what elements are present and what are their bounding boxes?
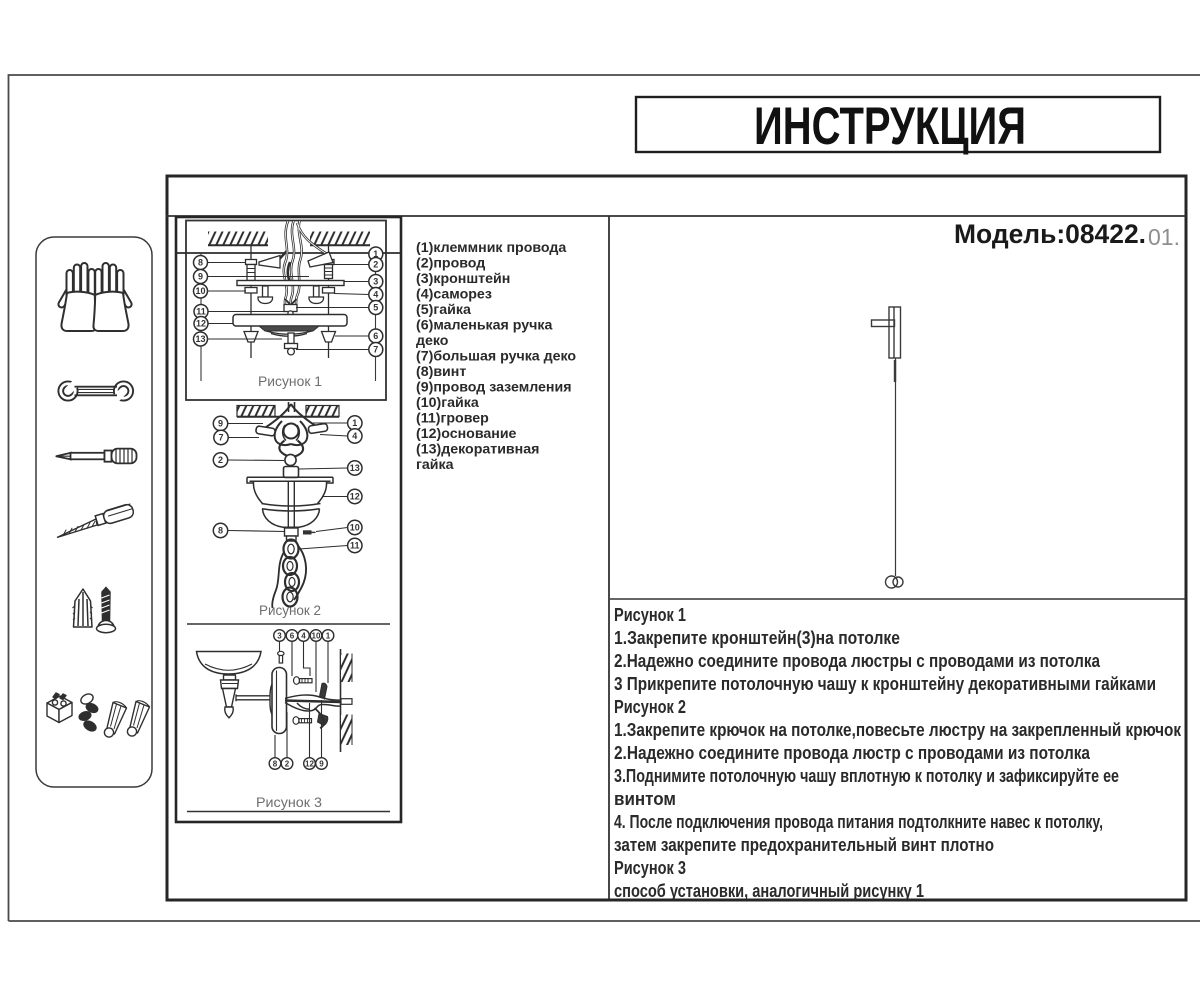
svg-text:01.: 01. [1148,224,1180,250]
svg-text:(13)декоративная: (13)декоративная [416,442,539,458]
svg-text:(3)кронштейн: (3)кронштейн [416,271,510,287]
svg-text:Рисунок 1: Рисунок 1 [614,605,686,625]
svg-text:способ установки, аналогичный: способ установки, аналогичный рисунку 1 [614,881,924,901]
svg-text:(10)гайка: (10)гайка [416,395,479,411]
svg-text:8: 8 [198,258,203,268]
svg-text:1.Закрепите кронштейн(3)на пот: 1.Закрепите кронштейн(3)на потолке [614,628,900,648]
svg-text:1: 1 [352,418,357,428]
svg-text:1.Закрепите крючок на потолке,: 1.Закрепите крючок на потолке,повесьте л… [614,720,1182,740]
svg-text:7: 7 [218,433,223,443]
svg-text:9: 9 [198,272,203,282]
svg-text:13: 13 [195,334,205,344]
svg-text:8: 8 [273,759,278,768]
svg-text:3.Поднимите потолочную чашу вп: 3.Поднимите потолочную чашу вплотную к п… [614,766,1119,786]
svg-text:11: 11 [196,307,206,317]
svg-text:(12)основание: (12)основание [416,426,517,442]
svg-text:2: 2 [285,759,290,768]
svg-text:7: 7 [373,345,378,355]
svg-text:деко: деко [416,333,449,349]
svg-text:Рисунок 1: Рисунок 1 [258,374,322,389]
svg-text:(2)провод: (2)провод [416,256,485,272]
svg-text:гайка: гайка [416,457,454,473]
svg-text:затем закрепите предохранитель: затем закрепите предохранительный винт п… [614,835,994,855]
svg-text:12: 12 [350,492,360,502]
svg-text:(5)гайка: (5)гайка [416,302,471,318]
svg-text:(7)большая ручка деко: (7)большая ручка деко [416,349,576,365]
svg-text:2.Надежно соедините провода лю: 2.Надежно соедините провода люстр с пров… [614,743,1091,763]
svg-text:4: 4 [373,290,378,300]
svg-text:6: 6 [373,331,378,341]
svg-text:(6)маленькая ручка: (6)маленькая ручка [416,318,552,334]
svg-text:4: 4 [301,631,306,640]
svg-text:10: 10 [350,523,360,533]
svg-text:ИНСТРУКЦИЯ: ИНСТРУКЦИЯ [754,97,1026,156]
svg-text:винтом: винтом [614,789,676,809]
svg-text:8: 8 [218,526,223,536]
svg-text:6: 6 [290,631,295,640]
svg-text:4: 4 [352,431,357,441]
svg-text:(1)клеммник провода: (1)клеммник провода [416,240,566,256]
svg-text:12: 12 [196,319,206,329]
svg-text:3: 3 [373,277,378,287]
svg-text:Рисунок 2: Рисунок 2 [614,697,686,717]
svg-text:3: 3 [277,631,282,640]
svg-text:(9)провод заземления: (9)провод заземления [416,380,571,396]
svg-text:(4)саморез: (4)саморез [416,287,492,303]
svg-text:3 Прикрепите потолочную чашу к: 3 Прикрепите потолочную чашу к кронштейн… [614,674,1156,694]
svg-text:Рисунок 3: Рисунок 3 [614,858,686,878]
svg-text:9: 9 [319,759,324,768]
svg-text:10: 10 [312,631,321,640]
svg-text:Рисунок 3: Рисунок 3 [256,795,322,810]
svg-text:2.Надежно соедините провода лю: 2.Надежно соедините провода люстры с про… [614,651,1101,671]
svg-text:(11)гровер: (11)гровер [416,411,489,427]
svg-text:1: 1 [326,631,331,640]
svg-text:1: 1 [373,249,378,259]
svg-text:11: 11 [350,541,360,551]
svg-text:Модель:08422.: Модель:08422. [954,219,1146,249]
svg-text:2: 2 [218,455,223,465]
svg-text:Рисунок 2: Рисунок 2 [259,603,321,618]
svg-text:13: 13 [350,463,360,473]
svg-text:4. После подключения провода: 4. После подключения провода питания под… [614,812,1103,832]
svg-text:(8)винт: (8)винт [416,364,466,380]
svg-text:12: 12 [305,759,314,768]
svg-text:10: 10 [195,286,205,296]
svg-text:5: 5 [373,303,378,313]
svg-text:2: 2 [373,260,378,270]
svg-text:9: 9 [218,419,223,429]
